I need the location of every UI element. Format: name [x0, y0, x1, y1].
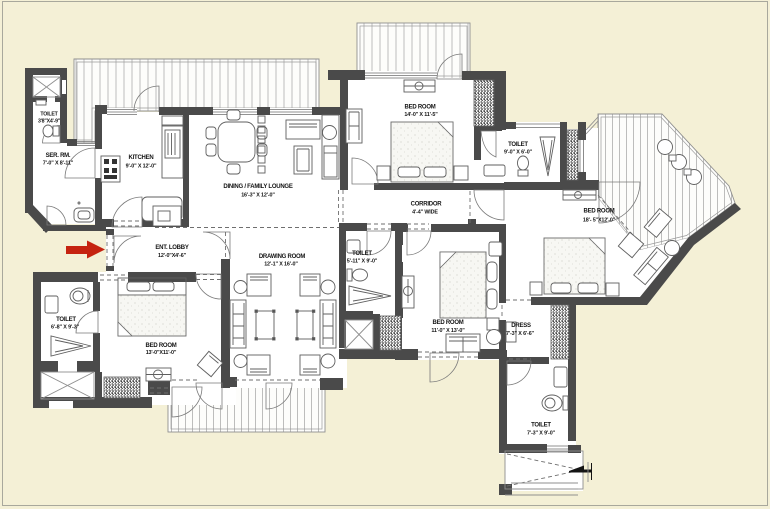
svg-text:BED ROOM: BED ROOM [433, 320, 464, 326]
svg-text:DINING / FAMILY LOUNGE: DINING / FAMILY LOUNGE [223, 184, 292, 190]
svg-text:13'-0"X11'-0": 13'-0"X11'-0" [146, 350, 177, 356]
svg-text:DRESS: DRESS [511, 323, 531, 329]
svg-text:DRAWING ROOM: DRAWING ROOM [259, 254, 306, 260]
svg-text:BED ROOM: BED ROOM [146, 343, 177, 349]
svg-text:BED ROOM: BED ROOM [405, 105, 436, 111]
svg-text:SER. RM.: SER. RM. [46, 153, 71, 159]
svg-text:4'-4" WIDE: 4'-4" WIDE [412, 210, 438, 216]
svg-text:11'-0" X 13'-0": 11'-0" X 13'-0" [431, 328, 465, 334]
svg-text:TOILET: TOILET [40, 112, 58, 118]
svg-text:KITCHEN: KITCHEN [129, 155, 154, 161]
svg-text:7'-3" X 6'-6": 7'-3" X 6'-6" [506, 331, 534, 337]
svg-text:9'-0" X 12'-0": 9'-0" X 12'-0" [126, 164, 157, 170]
svg-text:14'-0" X 11'-5": 14'-0" X 11'-5" [404, 112, 438, 118]
svg-text:12'-1" X 16'-0": 12'-1" X 16'-0" [264, 262, 298, 268]
svg-text:16'-3" X 12'-0": 16'-3" X 12'-0" [241, 193, 275, 199]
svg-text:9'-0" X 6'-0": 9'-0" X 6'-0" [504, 150, 532, 156]
svg-text:BED ROOM: BED ROOM [584, 209, 615, 215]
svg-text:18'- 5"X12'-0": 18'- 5"X12'-0" [583, 218, 616, 224]
svg-text:12'-0"X4'-6": 12'-0"X4'-6" [158, 253, 187, 259]
svg-text:TOILET: TOILET [352, 251, 372, 257]
svg-text:5'-11" X 9'-0": 5'-11" X 9'-0" [347, 259, 378, 265]
svg-text:7'-3" X 9'-0": 7'-3" X 9'-0" [527, 431, 555, 437]
svg-text:CORRIDOR: CORRIDOR [411, 202, 443, 208]
svg-text:TOILET: TOILET [56, 317, 76, 323]
svg-text:TOILET: TOILET [531, 423, 551, 429]
svg-text:3'8"X4'-9": 3'8"X4'-9" [38, 119, 61, 125]
svg-text:TOILET: TOILET [508, 142, 528, 148]
svg-text:7'-0" X 8'-11": 7'-0" X 8'-11" [43, 161, 74, 167]
svg-text:6'-8" X 9'-3": 6'-8" X 9'-3" [51, 325, 79, 331]
svg-text:ENT. LOBBY: ENT. LOBBY [155, 245, 188, 251]
